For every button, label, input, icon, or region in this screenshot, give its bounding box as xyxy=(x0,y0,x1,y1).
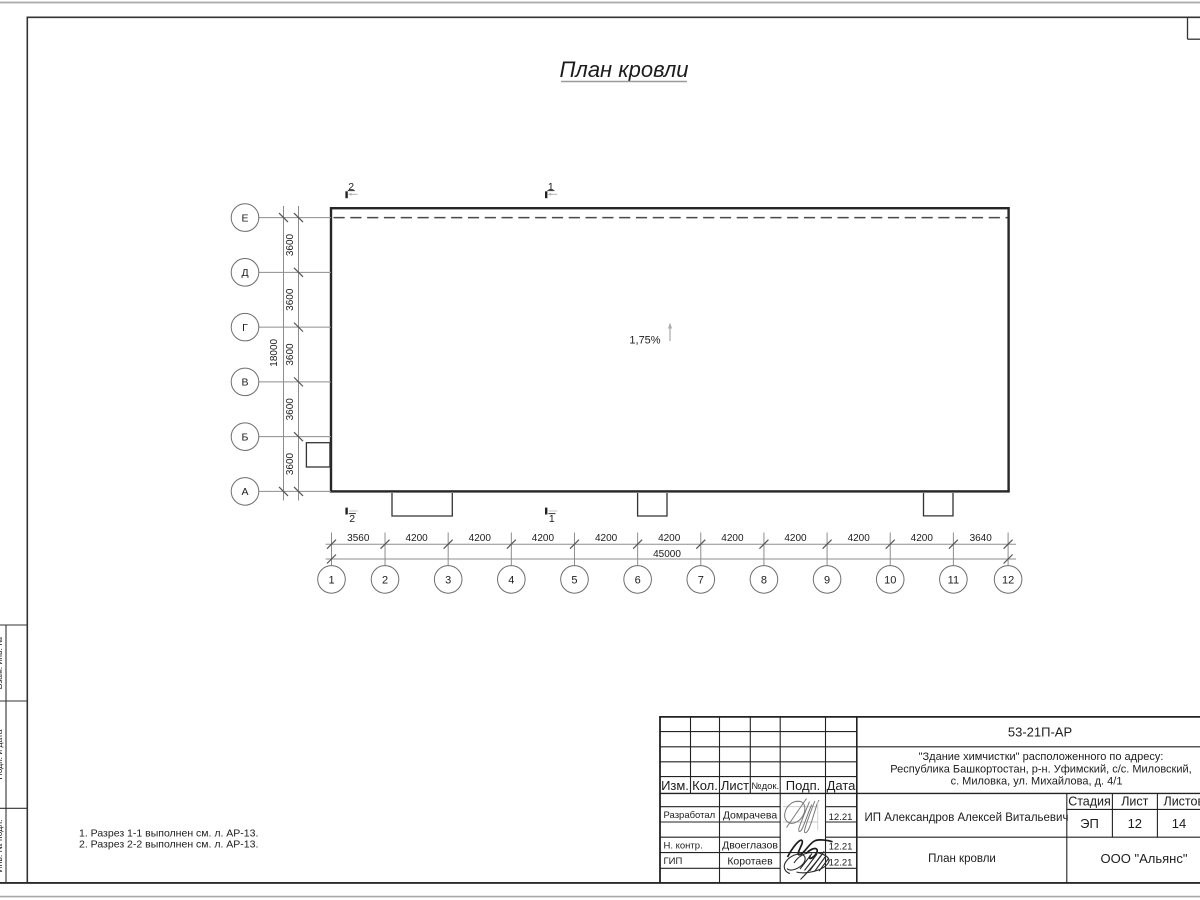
svg-text:Листов: Листов xyxy=(1164,795,1200,809)
svg-text:ИП Александров Алексей Виталье: ИП Александров Алексей Витальевич xyxy=(865,812,1069,824)
svg-text:ГИП: ГИП xyxy=(664,856,683,867)
svg-text:1: 1 xyxy=(548,181,554,193)
svg-text:53-21П-АР: 53-21П-АР xyxy=(1008,725,1072,740)
svg-text:План кровли: План кровли xyxy=(928,853,996,865)
svg-text:4200: 4200 xyxy=(469,533,492,544)
svg-text:4200: 4200 xyxy=(848,533,871,544)
svg-text:Лист: Лист xyxy=(1121,795,1148,809)
svg-text:А: А xyxy=(241,486,248,498)
svg-text:Разработал: Разработал xyxy=(664,810,716,821)
svg-text:1,75%: 1,75% xyxy=(629,335,660,347)
svg-text:3640: 3640 xyxy=(970,533,993,544)
svg-text:4200: 4200 xyxy=(784,533,807,544)
svg-text:3600: 3600 xyxy=(285,233,296,256)
svg-text:Стадия: Стадия xyxy=(1068,795,1111,809)
svg-text:3600: 3600 xyxy=(285,398,296,421)
svg-text:3600: 3600 xyxy=(285,288,296,311)
svg-text:12: 12 xyxy=(1128,816,1142,831)
svg-text:Взам. инв. №: Взам. инв. № xyxy=(0,637,4,690)
svg-text:Коротаев: Коротаев xyxy=(727,855,773,867)
svg-text:Дата: Дата xyxy=(827,778,857,793)
svg-text:3: 3 xyxy=(445,574,451,586)
svg-text:12: 12 xyxy=(1002,574,1014,586)
svg-text:Изм.: Изм. xyxy=(661,778,689,793)
svg-text:2: 2 xyxy=(382,574,388,586)
svg-text:12.21: 12.21 xyxy=(829,842,853,853)
svg-text:2: 2 xyxy=(348,181,354,193)
svg-text:4: 4 xyxy=(508,574,514,586)
svg-text:12.21: 12.21 xyxy=(829,812,853,823)
svg-text:с. Миловка, ул. Михайлова, д.: с. Миловка, ул. Михайлова, д. 4/1 xyxy=(951,776,1123,788)
svg-text:1: 1 xyxy=(549,513,555,525)
svg-text:В: В xyxy=(241,377,248,389)
svg-text:11: 11 xyxy=(948,574,959,586)
svg-text:Е: Е xyxy=(241,212,248,224)
svg-text:Н. контр.: Н. контр. xyxy=(664,840,703,851)
svg-text:9: 9 xyxy=(824,574,830,586)
svg-text:7: 7 xyxy=(698,574,704,586)
svg-text:12.21: 12.21 xyxy=(829,857,853,868)
svg-text:1: 1 xyxy=(328,574,334,586)
svg-text:2: 2 xyxy=(349,513,355,525)
svg-text:Двоеглазов: Двоеглазов xyxy=(722,840,778,852)
svg-text:Б: Б xyxy=(242,431,249,443)
svg-text:Домрачева: Домрачева xyxy=(723,809,778,821)
svg-text:Лист: Лист xyxy=(721,778,749,793)
svg-text:4200: 4200 xyxy=(721,533,744,544)
svg-text:5: 5 xyxy=(571,574,577,586)
svg-text:6: 6 xyxy=(635,574,641,586)
svg-text:4200: 4200 xyxy=(911,533,934,544)
svg-text:Подп.: Подп. xyxy=(786,778,821,793)
svg-text:Кол.: Кол. xyxy=(692,778,718,793)
svg-text:4200: 4200 xyxy=(532,533,555,544)
svg-text:4200: 4200 xyxy=(595,533,618,544)
svg-text:4200: 4200 xyxy=(658,533,681,544)
svg-text:3560: 3560 xyxy=(347,533,370,544)
svg-text:Подп. и дата: Подп. и дата xyxy=(0,729,4,779)
svg-text:Республика Башкортостан, р-н.: Республика Башкортостан, р-н. Уфимский, … xyxy=(890,763,1191,775)
svg-text:ООО "Альянс": ООО "Альянс" xyxy=(1101,851,1188,866)
svg-text:4200: 4200 xyxy=(405,533,428,544)
svg-text:3600: 3600 xyxy=(285,452,296,475)
svg-text:8: 8 xyxy=(761,574,767,586)
svg-text:Д: Д xyxy=(241,267,248,279)
svg-text:2. Разрез 2-2 выполнен см. л.: 2. Разрез 2-2 выполнен см. л. АР-13. xyxy=(79,839,258,851)
svg-text:3600: 3600 xyxy=(285,343,296,366)
svg-text:Г: Г xyxy=(242,322,248,334)
svg-text:18000: 18000 xyxy=(269,338,280,366)
svg-text:ЭП: ЭП xyxy=(1080,816,1099,831)
svg-text:45000: 45000 xyxy=(653,549,681,560)
svg-text:14: 14 xyxy=(1172,816,1186,831)
svg-text:№док.: №док. xyxy=(751,781,779,792)
svg-text:10: 10 xyxy=(884,574,896,586)
svg-text:Инв. № подл.: Инв. № подл. xyxy=(0,820,4,873)
svg-text:"Здание химчистки" расположенн: "Здание химчистки" расположенного по адр… xyxy=(919,751,1164,763)
svg-text:План кровли: План кровли xyxy=(559,57,688,82)
